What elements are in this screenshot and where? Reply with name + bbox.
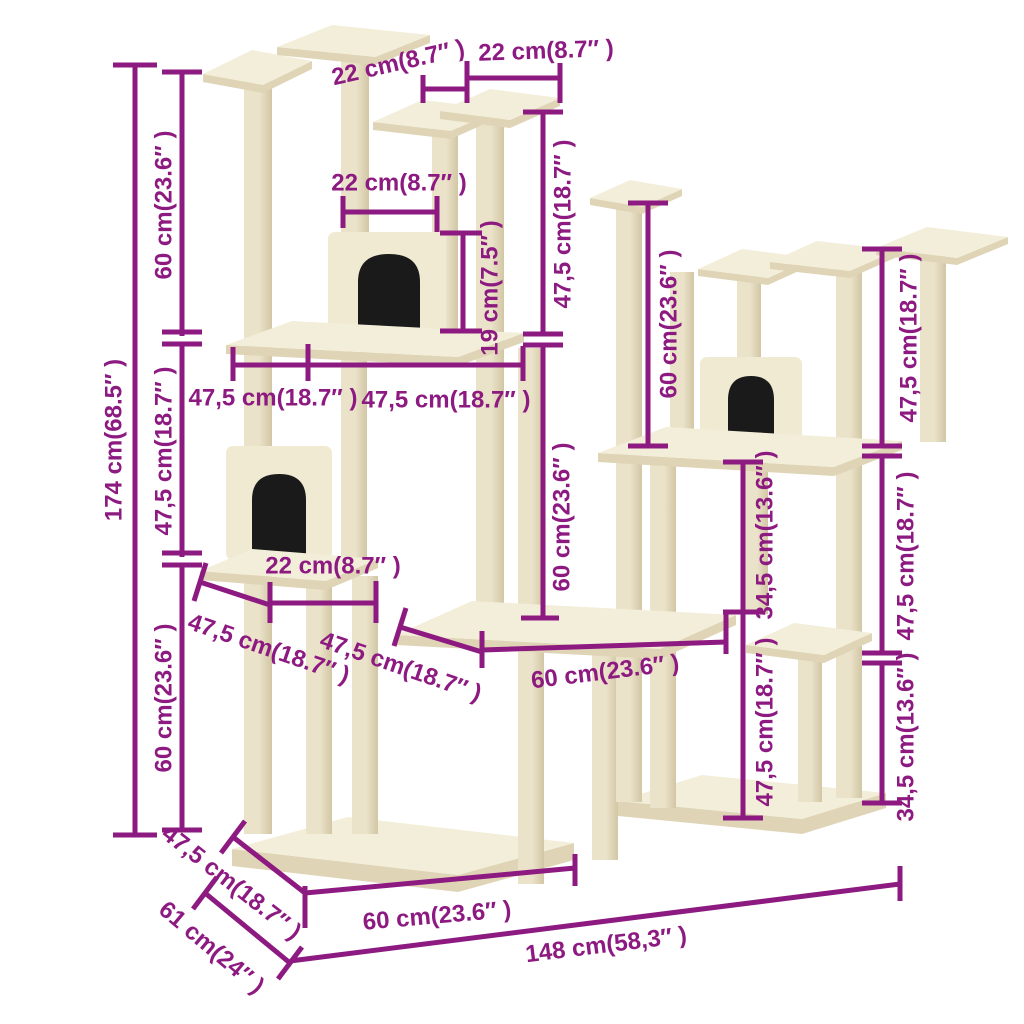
dim-label-top-center-height: 47,5 cm(18.7″ ) bbox=[549, 140, 576, 309]
dim-label-far-right-bottom: 34,5 cm(13.6″ ) bbox=[892, 653, 919, 822]
scratching-post bbox=[737, 272, 761, 364]
dim-label-center-column-height: 60 cm(23.6″ ) bbox=[548, 443, 575, 592]
dim-label-shelf-width-left: 47,5 cm(18.7″ ) bbox=[189, 384, 358, 411]
dim-label-left-section-top: 60 cm(23.6″ ) bbox=[150, 131, 177, 280]
scratching-post bbox=[306, 576, 332, 834]
dim-label-far-right-top: 47,5 cm(18.7″ ) bbox=[895, 254, 922, 423]
dim-label-lower-house-width: 22 cm(8.7″ ) bbox=[265, 552, 401, 579]
scratching-post bbox=[616, 202, 642, 802]
scratching-post bbox=[798, 658, 822, 802]
dim-label-shelf-width-right: 47,5 cm(18.7″ ) bbox=[362, 386, 531, 413]
dim-label-left-section-bottom: 60 cm(23.6″ ) bbox=[150, 624, 177, 773]
cat-tree-dimension-diagram: 174 cm(68.5″ ) 60 cm(23.6″ ) 47,5 cm(18.… bbox=[0, 0, 1024, 1024]
dim-label-center-right-upper: 34,5 cm(13.6″ ) bbox=[751, 451, 778, 620]
scratching-post bbox=[920, 250, 946, 442]
scratching-post bbox=[476, 106, 504, 612]
dim-label-height-overall: 174 cm(68.5″ ) bbox=[100, 359, 127, 521]
dim-label-top-platform-right: 22 cm(8.7″ ) bbox=[478, 35, 614, 67]
scratching-post bbox=[341, 352, 367, 558]
dim-label-left-section-mid: 47,5 cm(18.7″ ) bbox=[150, 367, 177, 536]
diagram-canvas: 174 cm(68.5″ ) 60 cm(23.6″ ) 47,5 cm(18.… bbox=[0, 0, 1024, 1024]
dim-label-upper-house-width: 22 cm(8.7″ ) bbox=[331, 169, 467, 196]
dim-label-right-tower-height: 60 cm(23.6″ ) bbox=[655, 250, 682, 399]
dim-label-far-right-mid: 47,5 cm(18.7″ ) bbox=[892, 472, 919, 641]
lower-house-opening bbox=[252, 474, 306, 560]
dim-label-center-right-lower: 47,5 cm(18.7″ ) bbox=[751, 638, 778, 807]
dim-label-house-post-offset: 19 cm(7.5″ ) bbox=[476, 220, 503, 356]
scratching-post bbox=[836, 264, 862, 798]
